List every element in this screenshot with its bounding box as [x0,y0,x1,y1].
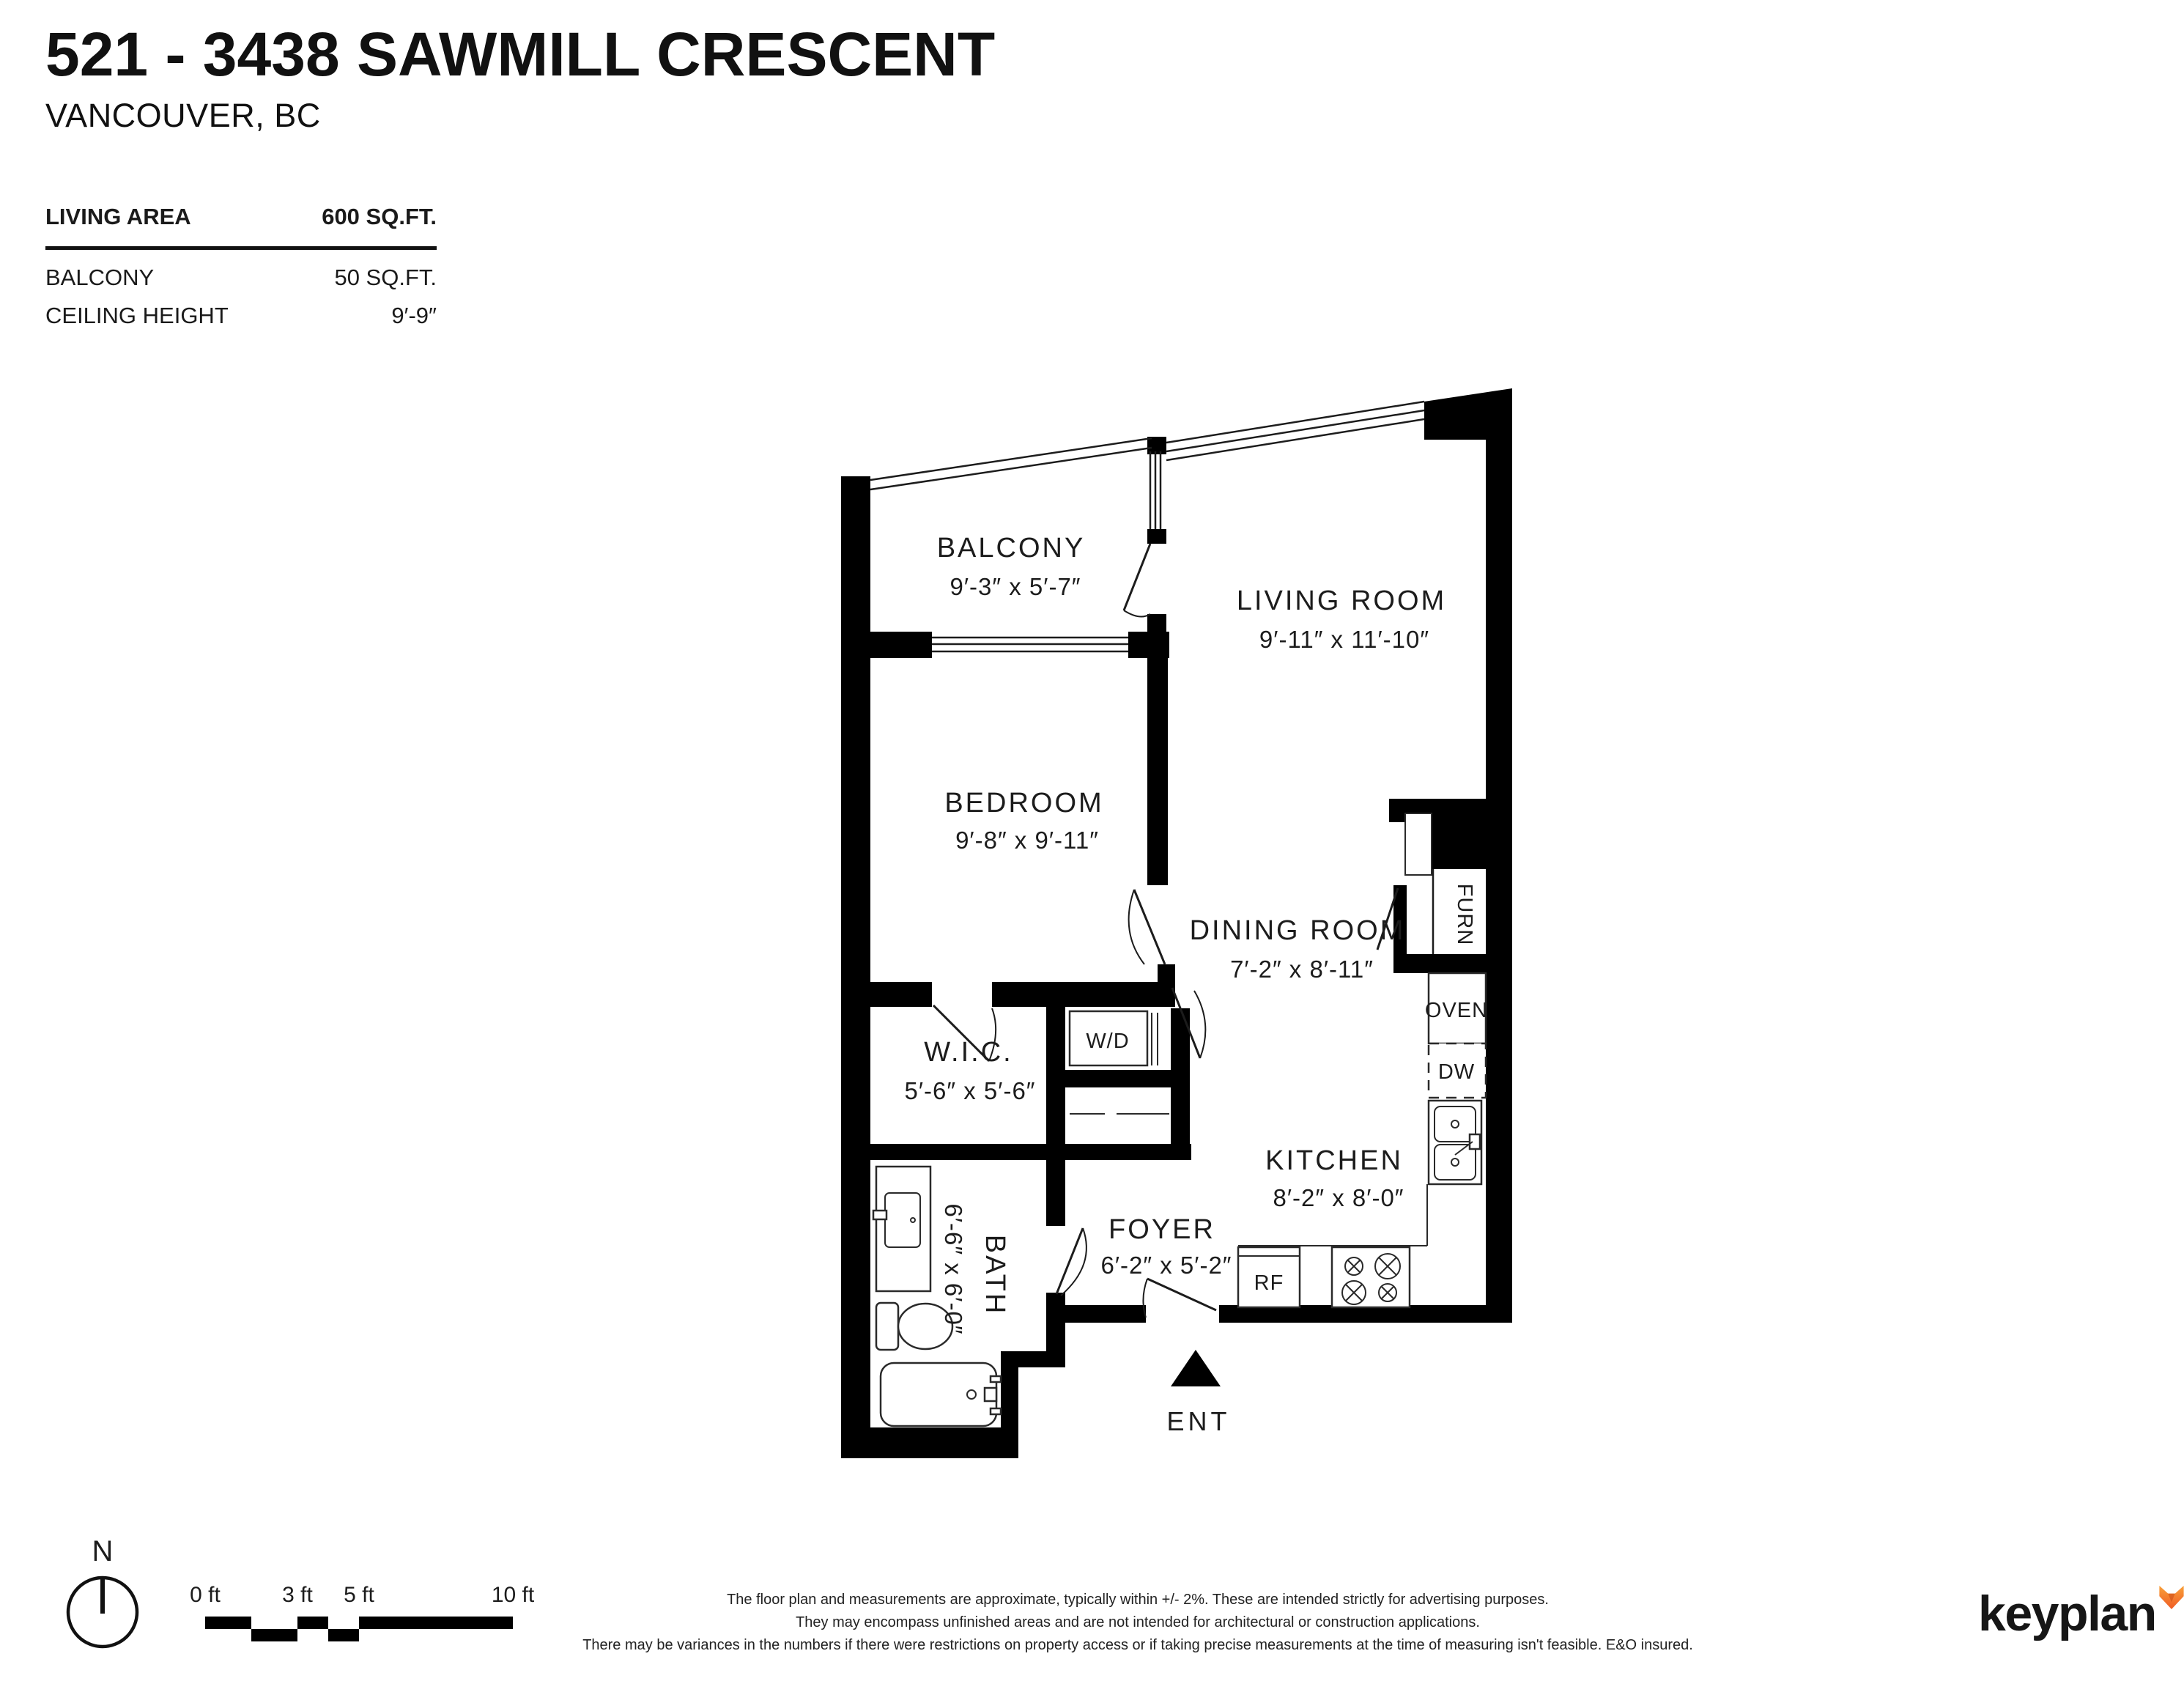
room-label-bath: BATH [980,1235,1010,1316]
room-dims-dining-room: 7′-2″ x 8′-11″ [1230,956,1374,983]
bathtub [881,1363,996,1426]
washer-dryer-label: W/D [1086,1030,1129,1053]
room-label-kitchen: KITCHEN [1265,1145,1403,1176]
room-label-foyer: FOYER [1108,1214,1215,1245]
room-dims-wic: 5′-6″ x 5′-6″ [905,1077,1036,1104]
room-dims-bath: 6′-6″ x 6′-0″ [940,1204,967,1335]
entry-arrow-icon [1171,1350,1221,1386]
stat-value: 600 SQ.FT. [322,204,437,230]
room-label-wic: W.I.C. [924,1037,1013,1068]
disclaimer-line: There may be variances in the numbers if… [552,1634,1724,1657]
stat-label: LIVING AREA [45,204,191,230]
disclaimer-line: The floor plan and measurements are appr… [552,1589,1724,1611]
stat-row-balcony: BALCONY 50 SQ.FT. [45,265,437,291]
floor-plan-drawing: BALCONY 9′-3″ x 5′-7″ LIVING ROOM 9′-11″… [806,366,1546,1510]
room-dims-foyer: 6′-2″ x 5′-2″ [1101,1252,1232,1279]
north-label: N [92,1535,114,1567]
room-dims-balcony: 9′-3″ x 5′-7″ [950,573,1081,600]
furnace-label: FURN [1453,884,1476,946]
stat-label: CEILING HEIGHT [45,303,229,329]
room-dims-bedroom: 9′-8″ x 9′-11″ [955,827,1099,854]
stat-row-ceiling-height: CEILING HEIGHT 9′-9″ [45,303,437,329]
area-stats: LIVING AREA 600 SQ.FT. BALCONY 50 SQ.FT.… [45,204,437,329]
footer-left: N 0 ft 3 ft 5 ft 10 ft [29,1524,586,1688]
header: 521 - 3438 SAWMILL CRESCENT VANCOUVER, B… [45,22,995,135]
stat-value: 50 SQ.FT. [334,265,437,291]
scale-tick: 10 ft [492,1583,535,1607]
disclaimer-line: They may encompass unfinished areas and … [552,1611,1724,1634]
room-dims-kitchen: 8′-2″ x 8′-0″ [1273,1184,1404,1211]
toilet [876,1303,898,1350]
brand-logo: keyplan [1978,1589,2184,1639]
room-label-dining-room: DINING ROOM [1190,915,1406,946]
stat-value: 9′-9″ [391,303,437,329]
fox-icon [2158,1584,2184,1614]
disclaimer: The floor plan and measurements are appr… [552,1589,1724,1657]
stats-divider [45,246,437,250]
north-arrow-icon: N [68,1535,137,1647]
scale-tick: 0 ft [190,1583,221,1607]
stat-label: BALCONY [45,265,154,291]
room-label-bedroom: BEDROOM [944,788,1103,819]
room-label-balcony: BALCONY [937,533,1086,564]
scale-bar: 0 ft 3 ft 5 ft 10 ft [190,1583,535,1641]
floor-plan: BALCONY 9′-3″ x 5′-7″ LIVING ROOM 9′-11″… [806,366,1546,1510]
room-dims-living-room: 9′-11″ x 11′-10″ [1259,626,1429,653]
brand-name: keyplan [1978,1589,2156,1639]
wall-niche [1405,813,1432,875]
room-label-living-room: LIVING ROOM [1237,585,1446,616]
entry-label: ENT [1167,1406,1231,1436]
scale-tick: 5 ft [344,1583,374,1607]
page-title: 521 - 3438 SAWMILL CRESCENT [45,22,995,86]
compass-and-scale: N 0 ft 3 ft 5 ft 10 ft [29,1524,586,1688]
fridge-label: RF [1254,1271,1284,1295]
stat-row-living-area: LIVING AREA 600 SQ.FT. [45,204,437,230]
dishwasher-label: DW [1438,1060,1475,1084]
oven-label: OVEN [1425,999,1488,1022]
scale-tick: 3 ft [282,1583,313,1607]
page-subtitle: VANCOUVER, BC [45,97,995,135]
